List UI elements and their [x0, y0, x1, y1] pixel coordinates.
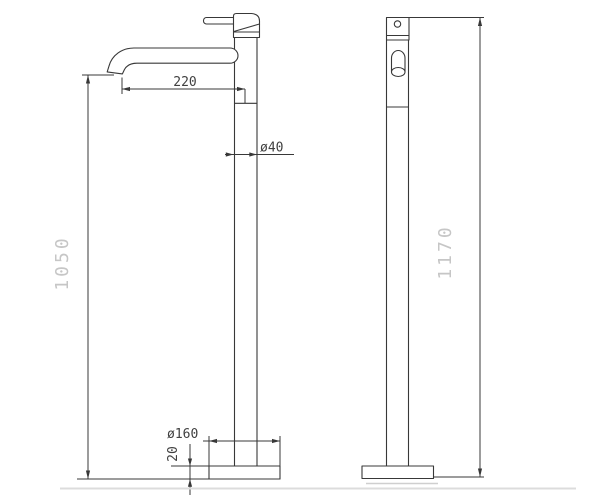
drawing-canvas: 220 1050 ø40 ø160 20 — [0, 0, 600, 500]
dim-base-thickness: 20 — [166, 444, 209, 495]
dim-label-spout-height: 1050 — [52, 235, 73, 290]
cartridge-head — [234, 14, 260, 33]
collar-band — [234, 32, 260, 38]
dim-spout-height: 1050 — [52, 75, 114, 479]
arrow-left — [122, 87, 130, 91]
arrow-down — [478, 469, 482, 478]
technical-drawing: 220 1050 ø40 ø160 20 — [0, 0, 600, 500]
dim-label-base-thickness: 20 — [166, 446, 181, 462]
dim-base-diameter: ø160 — [167, 427, 280, 466]
riser-pipe — [235, 38, 258, 467]
arrow-down — [86, 471, 90, 480]
dim-label-total-height: 1170 — [435, 224, 456, 279]
dim-label-base-diameter: ø160 — [167, 427, 198, 442]
arrow-up — [188, 479, 192, 487]
base-plate — [209, 466, 280, 479]
side-view — [362, 18, 434, 479]
arrow-down — [188, 459, 192, 467]
arrow-up — [86, 75, 90, 84]
dim-label-pipe-diameter: ø40 — [260, 141, 283, 156]
side-collar-band — [387, 36, 410, 41]
handle-lever — [204, 18, 238, 25]
arrow-right — [272, 439, 280, 443]
spout — [107, 48, 238, 74]
arrow-up — [478, 18, 482, 27]
side-head — [387, 18, 410, 36]
arrow-left — [226, 152, 234, 156]
side-base-plate — [362, 466, 434, 479]
side-body — [387, 40, 409, 466]
arrow-left — [209, 439, 217, 443]
dim-label-spout-reach: 220 — [173, 75, 196, 90]
dim-spout-reach: 220 — [122, 75, 245, 103]
dim-total-height: 1170 — [409, 18, 484, 478]
side-spout-opening — [392, 68, 406, 77]
